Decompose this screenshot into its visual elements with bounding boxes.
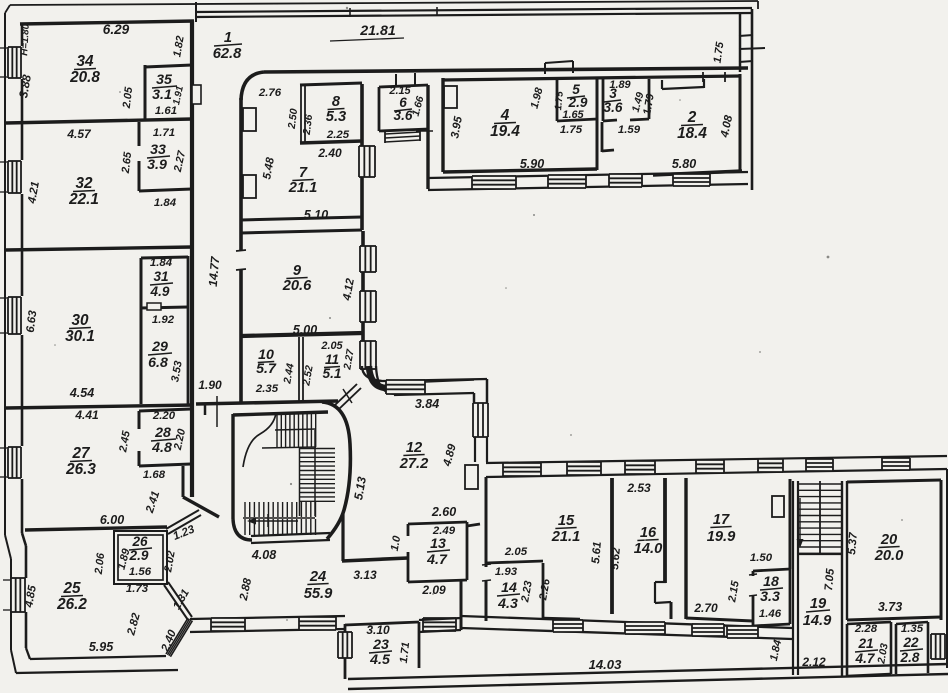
svg-text:1.75: 1.75 [553,90,566,111]
svg-text:22: 22 [902,635,919,650]
svg-text:6.29: 6.29 [103,22,130,37]
svg-text:2.05: 2.05 [504,546,528,558]
svg-text:H=1.80: H=1.80 [19,23,32,56]
svg-text:5.37: 5.37 [846,532,860,556]
svg-text:5.1: 5.1 [323,366,342,381]
svg-text:4.5: 4.5 [369,652,391,668]
svg-text:1.50: 1.50 [750,552,773,564]
svg-text:32: 32 [75,175,93,192]
svg-text:2.09: 2.09 [421,583,446,597]
svg-text:5.61: 5.61 [590,541,604,564]
svg-text:20.8: 20.8 [69,69,100,86]
svg-text:20.6: 20.6 [282,278,312,294]
svg-text:24: 24 [309,569,326,585]
svg-text:3: 3 [609,86,617,101]
svg-text:14.77: 14.77 [206,255,223,287]
svg-text:3.73: 3.73 [878,600,902,614]
svg-text:23: 23 [372,637,389,653]
svg-text:33: 33 [150,142,166,158]
svg-text:2.28: 2.28 [854,623,878,635]
svg-text:28: 28 [154,425,171,441]
svg-text:1.71: 1.71 [398,641,412,664]
svg-text:31: 31 [153,269,168,284]
svg-text:3.9: 3.9 [147,157,167,173]
svg-text:1: 1 [224,30,232,46]
svg-text:13: 13 [430,536,446,552]
svg-text:7.05: 7.05 [823,568,837,592]
svg-text:35: 35 [156,72,173,88]
svg-text:1.93: 1.93 [495,566,518,578]
svg-text:8: 8 [332,94,341,110]
svg-text:2.40: 2.40 [317,146,342,160]
svg-text:18: 18 [763,574,779,590]
svg-text:2.60: 2.60 [431,505,456,519]
svg-text:4.41: 4.41 [74,408,99,422]
svg-text:27: 27 [71,445,91,462]
svg-text:1.90: 1.90 [198,378,222,392]
svg-text:20.0: 20.0 [874,548,904,564]
svg-text:1.68: 1.68 [143,469,166,481]
svg-text:5.80: 5.80 [672,157,696,171]
svg-text:14.03: 14.03 [589,657,622,672]
svg-text:4.7: 4.7 [855,651,876,666]
svg-text:2.05: 2.05 [320,340,343,352]
svg-text:7: 7 [299,165,308,181]
svg-text:3.10: 3.10 [366,623,390,637]
svg-text:1.84: 1.84 [154,197,177,209]
svg-text:1.73: 1.73 [126,583,149,595]
svg-text:19: 19 [810,596,827,612]
svg-text:12: 12 [406,440,423,456]
svg-text:2.9: 2.9 [568,95,588,110]
svg-text:1.46: 1.46 [759,608,782,620]
svg-text:3.1: 3.1 [152,87,172,103]
svg-text:62.8: 62.8 [213,46,242,62]
svg-text:6.00: 6.00 [100,513,124,527]
svg-text:5.3: 5.3 [326,109,346,125]
svg-text:29: 29 [151,339,168,355]
svg-text:5.7: 5.7 [256,361,277,377]
svg-text:2.76: 2.76 [258,87,282,99]
svg-text:20: 20 [880,532,898,548]
svg-text:26.2: 26.2 [56,596,87,613]
svg-text:4: 4 [500,107,510,124]
svg-text:1.61: 1.61 [155,105,177,117]
svg-text:1.56: 1.56 [129,566,152,578]
svg-text:5.10: 5.10 [304,208,328,222]
svg-text:26.3: 26.3 [65,461,96,478]
svg-text:30: 30 [71,312,89,329]
svg-text:4.54: 4.54 [69,386,94,400]
svg-text:15: 15 [558,513,575,529]
svg-text:1.75: 1.75 [560,124,583,136]
svg-text:14: 14 [501,580,517,596]
svg-text:1.65: 1.65 [562,109,584,121]
svg-text:1.35: 1.35 [901,623,924,635]
svg-text:34: 34 [76,53,94,70]
svg-text:2.35: 2.35 [255,383,279,395]
svg-text:26: 26 [131,534,148,549]
svg-text:14.0: 14.0 [634,541,663,557]
svg-text:2.8: 2.8 [900,650,920,665]
svg-text:11: 11 [325,352,339,367]
svg-text:2.70: 2.70 [693,601,718,615]
svg-text:19.4: 19.4 [490,123,520,140]
svg-text:19.9: 19.9 [707,529,736,545]
svg-text:30.1: 30.1 [65,328,95,345]
svg-text:2: 2 [687,109,697,126]
svg-text:1.59: 1.59 [618,124,641,136]
svg-text:9: 9 [293,263,302,279]
svg-text:4.7: 4.7 [426,552,448,568]
svg-text:6.8: 6.8 [148,355,168,371]
svg-text:21.1: 21.1 [551,529,581,545]
svg-text:18.4: 18.4 [677,125,707,142]
svg-text:25: 25 [62,580,81,597]
svg-text:2.20: 2.20 [152,410,176,422]
svg-text:3.84: 3.84 [415,397,439,411]
svg-text:4.8: 4.8 [151,440,172,456]
svg-text:3.6: 3.6 [604,100,623,115]
svg-text:1.84: 1.84 [150,257,173,269]
svg-text:21.1: 21.1 [288,180,318,196]
svg-text:1.92: 1.92 [152,314,175,326]
svg-text:3.3: 3.3 [760,589,780,605]
svg-text:55.9: 55.9 [304,586,333,602]
svg-text:5.95: 5.95 [89,640,114,654]
svg-text:4.3: 4.3 [497,596,518,612]
svg-text:22.1: 22.1 [68,191,99,208]
svg-text:4.9: 4.9 [150,284,170,299]
svg-text:2.53: 2.53 [626,481,651,495]
svg-text:4.57: 4.57 [66,127,92,141]
svg-text:14.9: 14.9 [803,613,832,629]
svg-text:21.81: 21.81 [359,23,396,39]
svg-text:21: 21 [857,636,873,651]
svg-text:27.2: 27.2 [399,456,429,472]
svg-text:3.13: 3.13 [353,568,377,582]
svg-text:4.08: 4.08 [251,548,276,562]
svg-text:2.25: 2.25 [326,129,350,141]
svg-text:1.71: 1.71 [153,127,175,139]
svg-text:16: 16 [640,525,657,541]
svg-text:17: 17 [713,512,730,528]
svg-text:2.12: 2.12 [801,655,826,669]
